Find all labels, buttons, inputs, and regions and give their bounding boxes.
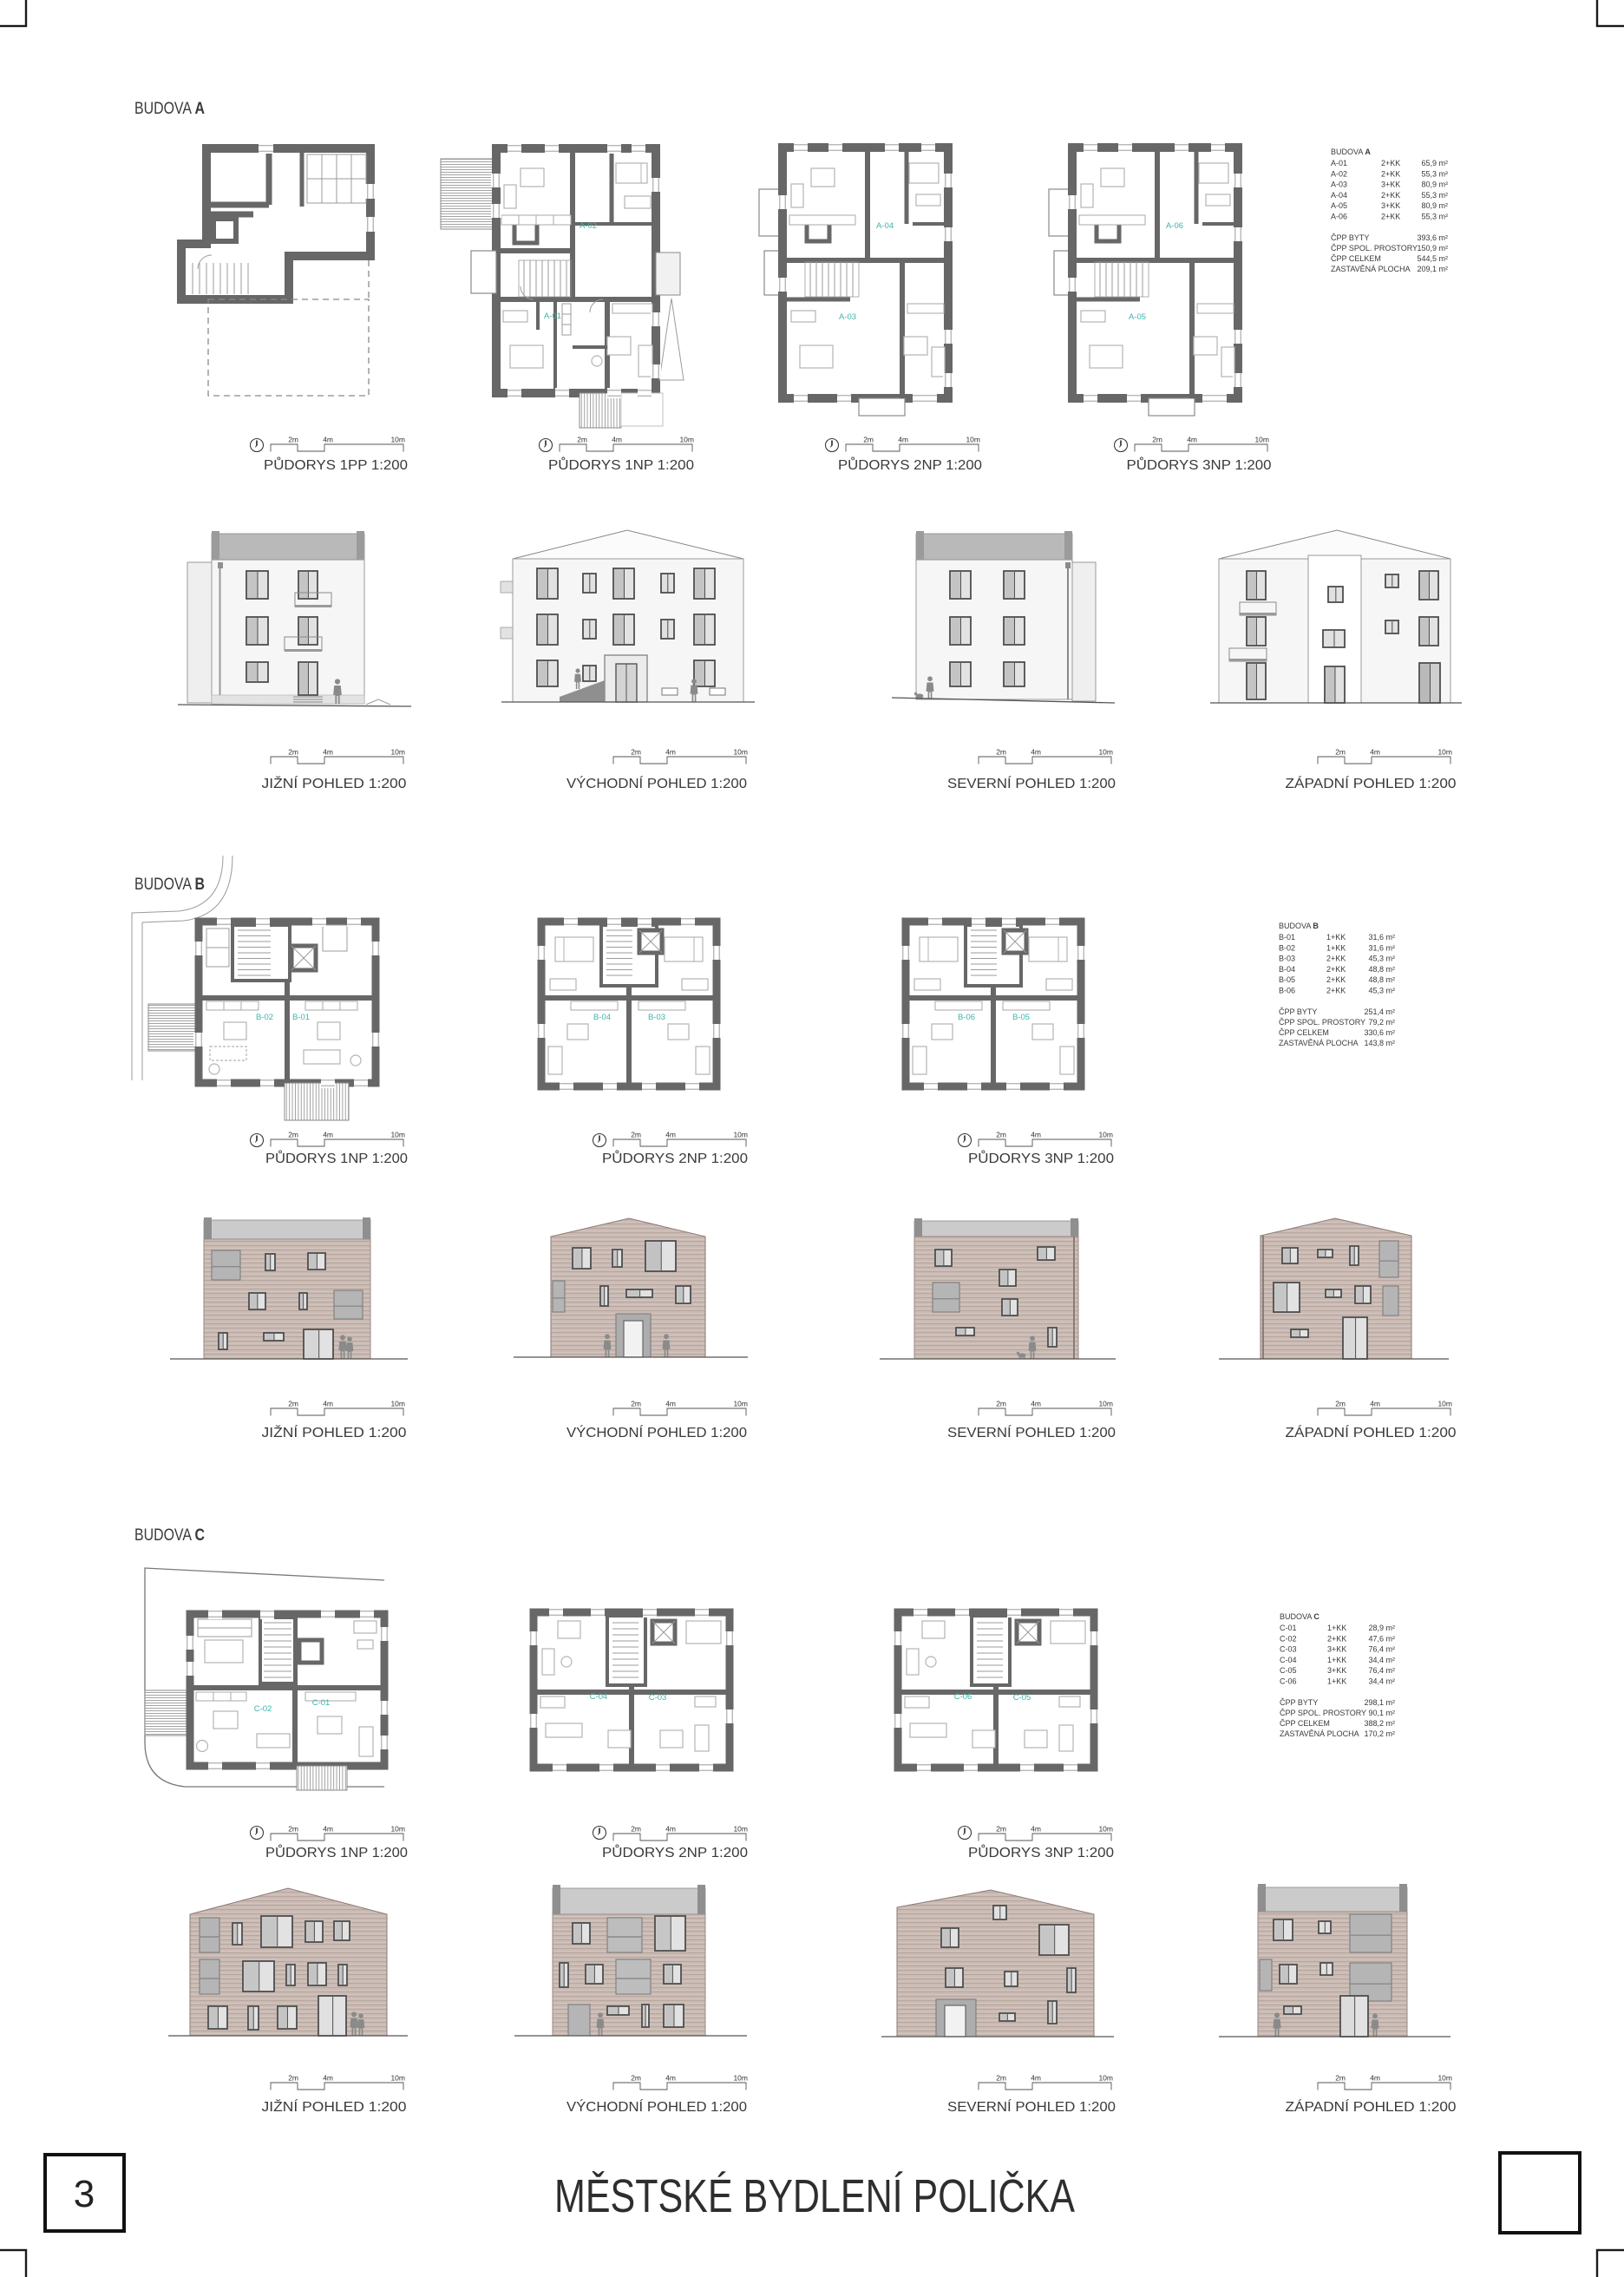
svg-text:4m: 4m (665, 2074, 676, 2083)
svg-text:3: 3 (74, 2173, 95, 2215)
svg-text:10m: 10m (733, 748, 748, 757)
svg-text:47,6 m²: 47,6 m² (1368, 1634, 1395, 1643)
svg-text:PŮDORYS 1NP 1:200: PŮDORYS 1NP 1:200 (265, 1150, 408, 1166)
svg-text:4m: 4m (898, 436, 908, 444)
svg-text:C-06: C-06 (954, 1692, 972, 1702)
svg-text:ČPP CELKEM: ČPP CELKEM (1331, 254, 1381, 263)
svg-text:SEVERNÍ POHLED 1:200: SEVERNÍ POHLED 1:200 (947, 775, 1116, 791)
svg-text:C-06: C-06 (1280, 1677, 1297, 1686)
svg-text:A-06: A-06 (1166, 221, 1183, 231)
svg-text:2m: 2m (1335, 1400, 1346, 1408)
svg-text:PŮDORYS 3NP 1:200: PŮDORYS 3NP 1:200 (1127, 456, 1272, 473)
svg-text:4m: 4m (1187, 436, 1197, 444)
svg-text:4m: 4m (323, 2074, 333, 2083)
svg-text:2m: 2m (288, 1131, 298, 1139)
svg-text:4m: 4m (323, 1400, 333, 1408)
svg-text:A-04: A-04 (1331, 191, 1347, 200)
svg-text:4m: 4m (665, 748, 676, 757)
svg-text:2+KK: 2+KK (1381, 213, 1400, 221)
svg-text:2m: 2m (288, 1825, 298, 1834)
svg-text:2m: 2m (288, 2074, 298, 2083)
svg-text:2+KK: 2+KK (1381, 169, 1400, 178)
svg-text:C-01: C-01 (1280, 1624, 1297, 1632)
svg-text:10m: 10m (390, 436, 405, 444)
svg-text:79,2 m²: 79,2 m² (1368, 1018, 1395, 1027)
svg-text:ČPP SPOL. PROSTORY: ČPP SPOL. PROSTORY (1280, 1709, 1366, 1717)
svg-text:1+KK: 1+KK (1326, 943, 1346, 952)
svg-text:JIŽNÍ POHLED 1:200: JIŽNÍ POHLED 1:200 (262, 775, 407, 791)
svg-text:2+KK: 2+KK (1381, 191, 1400, 200)
svg-text:170,2 m²: 170,2 m² (1364, 1729, 1395, 1738)
svg-text:2m: 2m (631, 748, 641, 757)
svg-text:A-02: A-02 (1331, 169, 1347, 178)
svg-text:4m: 4m (323, 1131, 333, 1139)
svg-text:10m: 10m (679, 436, 694, 444)
svg-text:90,1 m²: 90,1 m² (1368, 1709, 1395, 1717)
svg-text:3+KK: 3+KK (1327, 1666, 1346, 1675)
svg-text:10m: 10m (1098, 748, 1113, 757)
svg-text:B-01: B-01 (292, 1013, 310, 1022)
svg-text:388,2 m²: 388,2 m² (1364, 1719, 1395, 1728)
svg-text:209,1 m²: 209,1 m² (1417, 265, 1448, 273)
svg-text:2+KK: 2+KK (1326, 955, 1346, 963)
svg-text:A-01: A-01 (1331, 159, 1347, 167)
svg-text:C-03: C-03 (649, 1693, 667, 1703)
svg-text:2m: 2m (631, 2074, 641, 2083)
svg-text:10m: 10m (1098, 1400, 1113, 1408)
svg-text:2m: 2m (631, 1131, 641, 1139)
svg-text:PŮDORYS 2NP 1:200: PŮDORYS 2NP 1:200 (838, 456, 982, 473)
svg-text:10m: 10m (1098, 1131, 1113, 1139)
svg-text:PŮDORYS 3NP 1:200: PŮDORYS 3NP 1:200 (968, 1844, 1114, 1860)
svg-text:34,4 m²: 34,4 m² (1368, 1677, 1395, 1686)
svg-text:C-01: C-01 (312, 1698, 331, 1708)
svg-text:150,9 m²: 150,9 m² (1417, 244, 1448, 253)
svg-text:VÝCHODNÍ POHLED 1:200: VÝCHODNÍ POHLED 1:200 (566, 2098, 747, 2115)
svg-text:B-04: B-04 (593, 1013, 611, 1022)
svg-text:JIŽNÍ POHLED 1:200: JIŽNÍ POHLED 1:200 (262, 1424, 407, 1440)
svg-text:2+KK: 2+KK (1381, 159, 1400, 167)
svg-text:PŮDORYS 2NP 1:200: PŮDORYS 2NP 1:200 (602, 1844, 748, 1860)
svg-text:10m: 10m (1254, 436, 1269, 444)
svg-text:ZASTAVĚNÁ PLOCHA: ZASTAVĚNÁ PLOCHA (1280, 1729, 1359, 1738)
svg-text:2m: 2m (1152, 436, 1162, 444)
svg-text:2m: 2m (1335, 748, 1346, 757)
svg-text:ZÁPADNÍ POHLED 1:200: ZÁPADNÍ POHLED 1:200 (1286, 775, 1457, 791)
svg-text:ZÁPADNÍ POHLED 1:200: ZÁPADNÍ POHLED 1:200 (1286, 2098, 1457, 2115)
svg-text:10m: 10m (1437, 748, 1452, 757)
svg-text:BUDOVA A: BUDOVA A (134, 100, 205, 118)
svg-text:JIŽNÍ POHLED 1:200: JIŽNÍ POHLED 1:200 (262, 2098, 407, 2115)
svg-text:10m: 10m (390, 1400, 405, 1408)
svg-text:34,4 m²: 34,4 m² (1368, 1656, 1395, 1664)
svg-text:2+KK: 2+KK (1326, 965, 1346, 974)
svg-text:31,6 m²: 31,6 m² (1368, 943, 1395, 952)
svg-text:3+KK: 3+KK (1327, 1645, 1346, 1654)
svg-text:2m: 2m (996, 1131, 1006, 1139)
svg-text:B-01: B-01 (1279, 933, 1295, 942)
svg-text:ČPP BYTY: ČPP BYTY (1331, 233, 1369, 242)
svg-text:2m: 2m (996, 748, 1006, 757)
svg-text:VÝCHODNÍ POHLED 1:200: VÝCHODNÍ POHLED 1:200 (566, 775, 747, 791)
svg-text:4m: 4m (1031, 1131, 1041, 1139)
svg-text:C-05: C-05 (1013, 1693, 1031, 1703)
svg-text:B-05: B-05 (1279, 975, 1295, 984)
svg-text:BUDOVA C: BUDOVA C (1280, 1612, 1319, 1621)
svg-text:A-01: A-01 (544, 312, 561, 321)
svg-text:10m: 10m (733, 2074, 748, 2083)
svg-text:2+KK: 2+KK (1326, 975, 1346, 984)
svg-text:2m: 2m (863, 436, 874, 444)
svg-text:ZASTAVĚNÁ PLOCHA: ZASTAVĚNÁ PLOCHA (1331, 265, 1411, 273)
svg-text:76,4 m²: 76,4 m² (1368, 1666, 1395, 1675)
svg-text:ČPP CELKEM: ČPP CELKEM (1280, 1719, 1330, 1728)
svg-text:ČPP CELKEM: ČPP CELKEM (1279, 1028, 1329, 1037)
svg-text:2m: 2m (288, 1400, 298, 1408)
svg-text:A-02: A-02 (580, 221, 597, 231)
svg-text:4m: 4m (323, 1825, 333, 1834)
svg-text:ČPP SPOL. PROSTORY: ČPP SPOL. PROSTORY (1279, 1018, 1365, 1027)
svg-text:C-02: C-02 (1280, 1634, 1297, 1643)
svg-text:B-02: B-02 (256, 1013, 273, 1022)
svg-text:2m: 2m (288, 436, 298, 444)
svg-text:10m: 10m (390, 748, 405, 757)
svg-text:2m: 2m (577, 436, 587, 444)
svg-text:SEVERNÍ POHLED 1:200: SEVERNÍ POHLED 1:200 (947, 2098, 1116, 2115)
svg-text:ČPP BYTY: ČPP BYTY (1279, 1007, 1317, 1016)
svg-text:2m: 2m (1335, 2074, 1346, 2083)
svg-text:B-03: B-03 (648, 1013, 665, 1022)
svg-text:A-03: A-03 (1331, 180, 1347, 189)
svg-text:PŮDORYS 3NP 1:200: PŮDORYS 3NP 1:200 (968, 1150, 1114, 1166)
svg-text:298,1 m²: 298,1 m² (1364, 1698, 1395, 1707)
svg-text:2+KK: 2+KK (1327, 1634, 1346, 1643)
svg-text:C-04: C-04 (590, 1692, 608, 1702)
svg-text:A-04: A-04 (876, 221, 894, 231)
svg-text:C-04: C-04 (1280, 1656, 1297, 1664)
svg-text:4m: 4m (1031, 748, 1041, 757)
svg-text:B-02: B-02 (1279, 943, 1295, 952)
svg-text:2m: 2m (996, 1400, 1006, 1408)
svg-text:2m: 2m (631, 1825, 641, 1834)
svg-text:ČPP SPOL. PROSTORY: ČPP SPOL. PROSTORY (1331, 244, 1418, 253)
svg-text:B-06: B-06 (958, 1013, 975, 1022)
svg-text:251,4 m²: 251,4 m² (1364, 1007, 1395, 1016)
svg-text:10m: 10m (1098, 2074, 1113, 2083)
svg-text:10m: 10m (1437, 2074, 1452, 2083)
svg-text:PŮDORYS 2NP 1:200: PŮDORYS 2NP 1:200 (602, 1150, 748, 1166)
svg-text:1+KK: 1+KK (1327, 1656, 1346, 1664)
svg-text:ZÁPADNÍ POHLED 1:200: ZÁPADNÍ POHLED 1:200 (1286, 1424, 1457, 1440)
svg-text:PŮDORYS 1PP 1:200: PŮDORYS 1PP 1:200 (264, 456, 408, 473)
svg-text:4m: 4m (1370, 2074, 1380, 2083)
svg-text:45,3 m²: 45,3 m² (1368, 987, 1395, 995)
svg-text:65,9 m²: 65,9 m² (1421, 159, 1448, 167)
svg-text:76,4 m²: 76,4 m² (1368, 1645, 1395, 1654)
svg-text:1+KK: 1+KK (1327, 1677, 1346, 1686)
svg-text:544,5 m²: 544,5 m² (1417, 254, 1448, 263)
svg-text:28,9 m²: 28,9 m² (1368, 1624, 1395, 1632)
svg-text:4m: 4m (1031, 1400, 1041, 1408)
svg-text:10m: 10m (390, 1131, 405, 1139)
svg-text:10m: 10m (733, 1825, 748, 1834)
svg-text:A-05: A-05 (1331, 201, 1347, 210)
svg-text:143,8 m²: 143,8 m² (1364, 1039, 1395, 1047)
svg-text:4m: 4m (1370, 1400, 1380, 1408)
svg-text:C-05: C-05 (1280, 1666, 1297, 1675)
svg-text:ČPP BYTY: ČPP BYTY (1280, 1698, 1318, 1707)
svg-text:MĚSTSKÉ BYDLENÍ POLIČKA: MĚSTSKÉ BYDLENÍ POLIČKA (554, 2170, 1075, 2222)
svg-text:A-03: A-03 (839, 312, 856, 322)
svg-text:80,9 m²: 80,9 m² (1421, 201, 1448, 210)
svg-text:B-03: B-03 (1279, 955, 1295, 963)
svg-text:C-03: C-03 (1280, 1645, 1297, 1654)
svg-text:4m: 4m (1031, 2074, 1041, 2083)
svg-text:1+KK: 1+KK (1326, 933, 1346, 942)
svg-text:B-05: B-05 (1012, 1013, 1030, 1022)
svg-text:48,8 m²: 48,8 m² (1368, 965, 1395, 974)
svg-text:2m: 2m (996, 2074, 1006, 2083)
svg-text:BUDOVA B: BUDOVA B (134, 876, 205, 894)
svg-text:10m: 10m (733, 1131, 748, 1139)
svg-text:2+KK: 2+KK (1326, 987, 1346, 995)
svg-text:10m: 10m (966, 436, 980, 444)
svg-text:4m: 4m (665, 1400, 676, 1408)
svg-text:VÝCHODNÍ POHLED 1:200: VÝCHODNÍ POHLED 1:200 (566, 1424, 747, 1440)
svg-text:A-05: A-05 (1129, 312, 1146, 322)
svg-text:55,3 m²: 55,3 m² (1421, 169, 1448, 178)
svg-text:2m: 2m (288, 748, 298, 757)
svg-text:10m: 10m (390, 1825, 405, 1834)
svg-text:55,3 m²: 55,3 m² (1421, 191, 1448, 200)
svg-text:PŮDORYS 1NP 1:200: PŮDORYS 1NP 1:200 (265, 1844, 408, 1860)
svg-text:4m: 4m (665, 1825, 676, 1834)
svg-text:393,6 m²: 393,6 m² (1417, 233, 1448, 242)
svg-text:BUDOVA C: BUDOVA C (134, 1526, 205, 1545)
svg-text:4m: 4m (323, 748, 333, 757)
svg-text:4m: 4m (1370, 748, 1380, 757)
svg-text:B-06: B-06 (1279, 987, 1295, 995)
svg-text:10m: 10m (1437, 1400, 1452, 1408)
svg-text:B-04: B-04 (1279, 965, 1295, 974)
svg-text:C-02: C-02 (254, 1704, 272, 1714)
svg-text:SEVERNÍ POHLED 1:200: SEVERNÍ POHLED 1:200 (947, 1424, 1116, 1440)
svg-text:4m: 4m (612, 436, 622, 444)
svg-text:PŮDORYS 1NP 1:200: PŮDORYS 1NP 1:200 (548, 456, 694, 473)
svg-text:4m: 4m (1031, 1825, 1041, 1834)
svg-text:1+KK: 1+KK (1327, 1624, 1346, 1632)
svg-text:10m: 10m (1098, 1825, 1113, 1834)
svg-text:330,6 m²: 330,6 m² (1364, 1028, 1395, 1037)
svg-text:3+KK: 3+KK (1381, 180, 1400, 189)
svg-text:31,6 m²: 31,6 m² (1368, 933, 1395, 942)
svg-text:55,3 m²: 55,3 m² (1421, 213, 1448, 221)
svg-text:10m: 10m (390, 2074, 405, 2083)
svg-text:4m: 4m (323, 436, 333, 444)
svg-text:BUDOVA A: BUDOVA A (1331, 148, 1371, 156)
svg-text:80,9 m²: 80,9 m² (1421, 180, 1448, 189)
svg-text:2m: 2m (996, 1825, 1006, 1834)
svg-text:4m: 4m (665, 1131, 676, 1139)
svg-text:A-06: A-06 (1331, 213, 1347, 221)
svg-text:48,8 m²: 48,8 m² (1368, 975, 1395, 984)
svg-text:ZASTAVĚNÁ PLOCHA: ZASTAVĚNÁ PLOCHA (1279, 1039, 1359, 1047)
svg-text:45,3 m²: 45,3 m² (1368, 955, 1395, 963)
svg-text:3+KK: 3+KK (1381, 201, 1400, 210)
svg-text:BUDOVA B: BUDOVA B (1279, 922, 1319, 930)
svg-text:2m: 2m (631, 1400, 641, 1408)
svg-text:10m: 10m (733, 1400, 748, 1408)
